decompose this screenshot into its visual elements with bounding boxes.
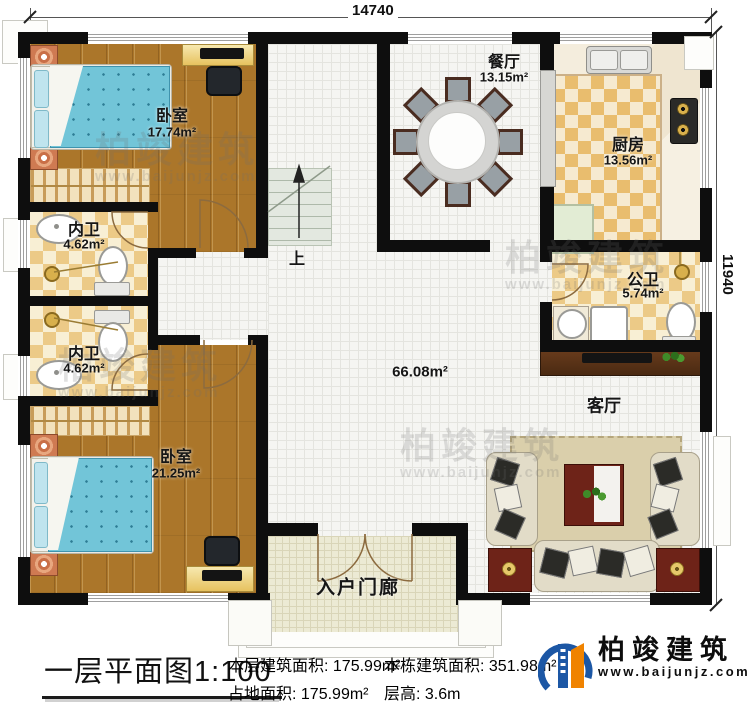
bath1-toilet-tank — [94, 282, 130, 296]
wall-bedroom1-south-b — [244, 248, 268, 258]
top-dimension-ext-right — [711, 8, 712, 32]
window-bath2-left — [18, 356, 30, 396]
stat-height-label: 层高: — [384, 686, 420, 703]
wall-stairwell — [377, 32, 390, 252]
stairs-up-label: 上 — [289, 245, 305, 269]
bedroom1-pillow-1 — [34, 70, 49, 108]
plan-title-text: 一层平面图 — [44, 656, 194, 688]
wall-porch-stub-right — [456, 536, 468, 593]
wall-kitchen-south — [540, 240, 712, 252]
bedroom1-closet — [30, 168, 150, 204]
window-bedroom2-left — [18, 445, 30, 557]
dining-label: 餐厅 — [488, 48, 520, 72]
wall-public-bath-west-a — [540, 252, 552, 262]
dining-area: 13.15m² — [480, 70, 528, 85]
bedroom1-tv — [200, 48, 244, 59]
stat-height: 层高: 3.6m — [384, 680, 460, 704]
bedroom2-nightstand-top — [30, 434, 58, 458]
window-sill-right — [713, 436, 731, 546]
stove-burner-1 — [677, 103, 689, 115]
bedroom1-label: 卧室 — [156, 102, 188, 126]
window-kitchen-top — [560, 32, 652, 44]
stat-floor-area-label: 本层建筑面积: — [228, 658, 328, 675]
bedroom2-pillow-2 — [34, 506, 48, 548]
sofa-main-cushion-3 — [596, 548, 626, 578]
bedroom2-tv — [202, 570, 242, 581]
porch-step-inner — [246, 630, 486, 648]
bath2-sink-drain — [54, 370, 59, 375]
wall-public-bath-south — [540, 340, 712, 352]
living-tv — [582, 353, 652, 363]
stat-total-area: 本栋建筑面积: 351.98m² — [384, 652, 557, 676]
company-logo: 柏竣建筑 www.baijunjz.com — [538, 634, 748, 704]
wall-bedroom2-east — [256, 345, 268, 593]
stat-floor-area: 本层建筑面积: 175.99m² — [228, 652, 401, 676]
kitchen-sink-basin-1 — [590, 50, 618, 70]
wall-bath-divider — [18, 296, 158, 306]
staircase — [268, 168, 332, 246]
public-bath-area: 5.74m² — [622, 286, 663, 301]
floor-plan-page: 14740 11940 — [0, 0, 750, 707]
coffee-table-plant — [578, 482, 608, 506]
window-living-bottom — [530, 593, 650, 605]
bedroom2-label: 卧室 — [160, 443, 192, 467]
bath1-shower-head — [44, 266, 60, 282]
window-public-bath-right — [700, 262, 712, 312]
side-table-left-lamp — [501, 561, 517, 577]
stat-total-area-label: 本栋建筑面积: — [384, 658, 484, 675]
bath2-toilet-bowl — [98, 322, 128, 362]
wall-bath1-north — [30, 202, 158, 212]
company-logo-name: 柏竣建筑 — [598, 636, 750, 664]
corridor-floor — [158, 248, 268, 340]
stat-footprint: 占地面积: 175.99m² — [228, 680, 369, 704]
dining-table-top — [428, 112, 486, 170]
window-dining-top — [408, 32, 512, 44]
window-living-right — [700, 432, 712, 548]
bedroom2-chair — [204, 536, 240, 566]
bath1-area: 4.62m² — [63, 237, 104, 252]
stove-burner-2 — [677, 124, 689, 136]
kitchen-area: 13.56m² — [604, 153, 652, 168]
bath1-toilet-bowl — [98, 246, 128, 286]
top-dimension-text: 14740 — [348, 2, 398, 19]
wall-dining-south — [377, 240, 490, 252]
dining-chair — [445, 181, 471, 207]
porch-label: 入户门廊 — [316, 573, 400, 600]
bath2-area: 4.62m² — [63, 361, 104, 376]
kitchen-sliding-door — [540, 70, 556, 187]
porch-column-left — [228, 600, 272, 646]
window-bedroom1-left — [18, 58, 30, 158]
stat-footprint-value: 175.99m² — [301, 686, 369, 703]
wall-kitchen-west-a — [540, 32, 554, 70]
company-logo-icon — [538, 634, 594, 700]
sofa-left-cushion-2 — [494, 484, 522, 512]
bedroom1-chair — [206, 66, 242, 96]
company-logo-url: www.baijunjz.com — [598, 664, 750, 679]
hall-area: 66.08m² — [392, 364, 448, 381]
window-bedroom2-bottom — [88, 593, 228, 605]
wall-bedroom1-east — [256, 32, 268, 248]
wall-bedroom2-north-b — [248, 335, 268, 345]
bedroom2-closet — [30, 406, 150, 436]
bedroom2-pillow-1 — [34, 462, 48, 504]
kitchen-label: 厨房 — [612, 131, 644, 155]
bedroom2-area: 21.25m² — [152, 466, 200, 481]
wall-porch-lintel-right — [412, 523, 468, 536]
bedroom2-nightstand-bottom — [30, 552, 58, 576]
wall-bath2-south — [30, 396, 158, 406]
wall-bath1-east-a — [148, 202, 158, 212]
bedroom1-pillow-2 — [34, 110, 49, 148]
window-kitchen-right — [700, 88, 712, 188]
bedroom1-area: 17.74m² — [148, 125, 196, 140]
public-bath-shower-head — [674, 264, 690, 280]
porch-column-right — [458, 600, 502, 646]
living-label: 客厅 — [587, 392, 621, 417]
public-bath-sink — [557, 309, 587, 339]
cabinet-plant — [658, 351, 686, 363]
window-bath1-left — [18, 220, 30, 268]
wall-bath1-east-b — [148, 248, 158, 306]
side-table-right-lamp — [669, 561, 685, 577]
window-bedroom1-top — [88, 32, 248, 44]
right-dimension-text: 11940 — [719, 250, 736, 299]
dining-chair — [497, 129, 523, 155]
wall-bedroom2-north-a — [148, 335, 200, 345]
sofa-main-cushion-2 — [568, 546, 599, 577]
bath1-sink-drain — [54, 224, 59, 229]
wall-kitchen-west-b — [540, 185, 554, 240]
stat-height-value: 3.6m — [425, 686, 461, 703]
kitchen-back-door — [684, 36, 714, 70]
wall-porch-lintel-left — [262, 523, 318, 536]
bath2-shower-head — [44, 312, 60, 328]
stat-footprint-label: 占地面积: — [228, 686, 296, 703]
kitchen-sink-basin-2 — [620, 50, 648, 70]
